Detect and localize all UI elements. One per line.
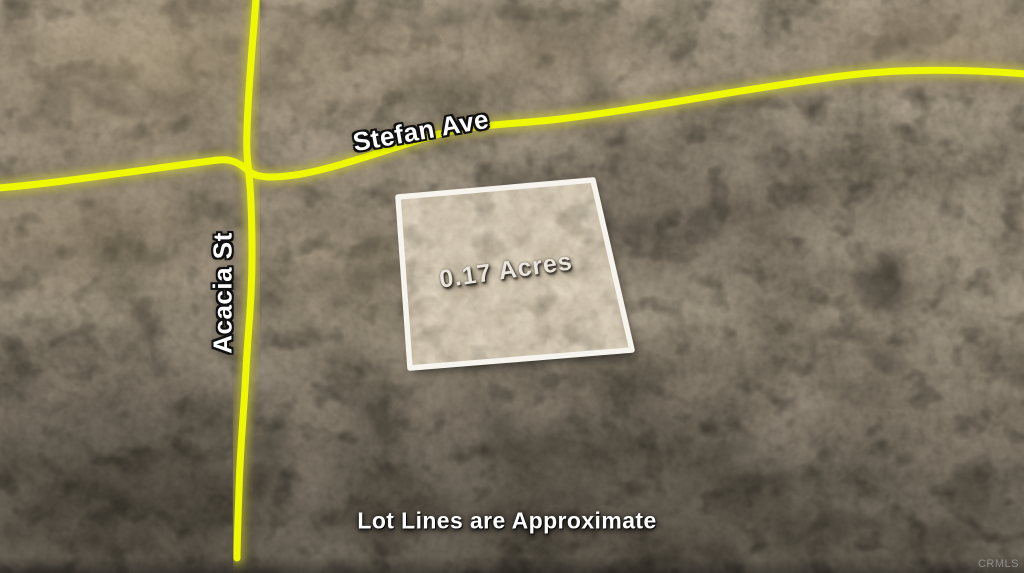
road-label-acacia-st: Acacia St: [208, 232, 239, 354]
aerial-map: Stefan Ave Acacia St 0.17 Acres Lot Line…: [0, 0, 1024, 573]
satellite-terrain-image: [0, 0, 1024, 573]
lot-lines-disclaimer: Lot Lines are Approximate: [357, 508, 656, 535]
crmls-watermark: CRMLS: [978, 558, 1019, 570]
